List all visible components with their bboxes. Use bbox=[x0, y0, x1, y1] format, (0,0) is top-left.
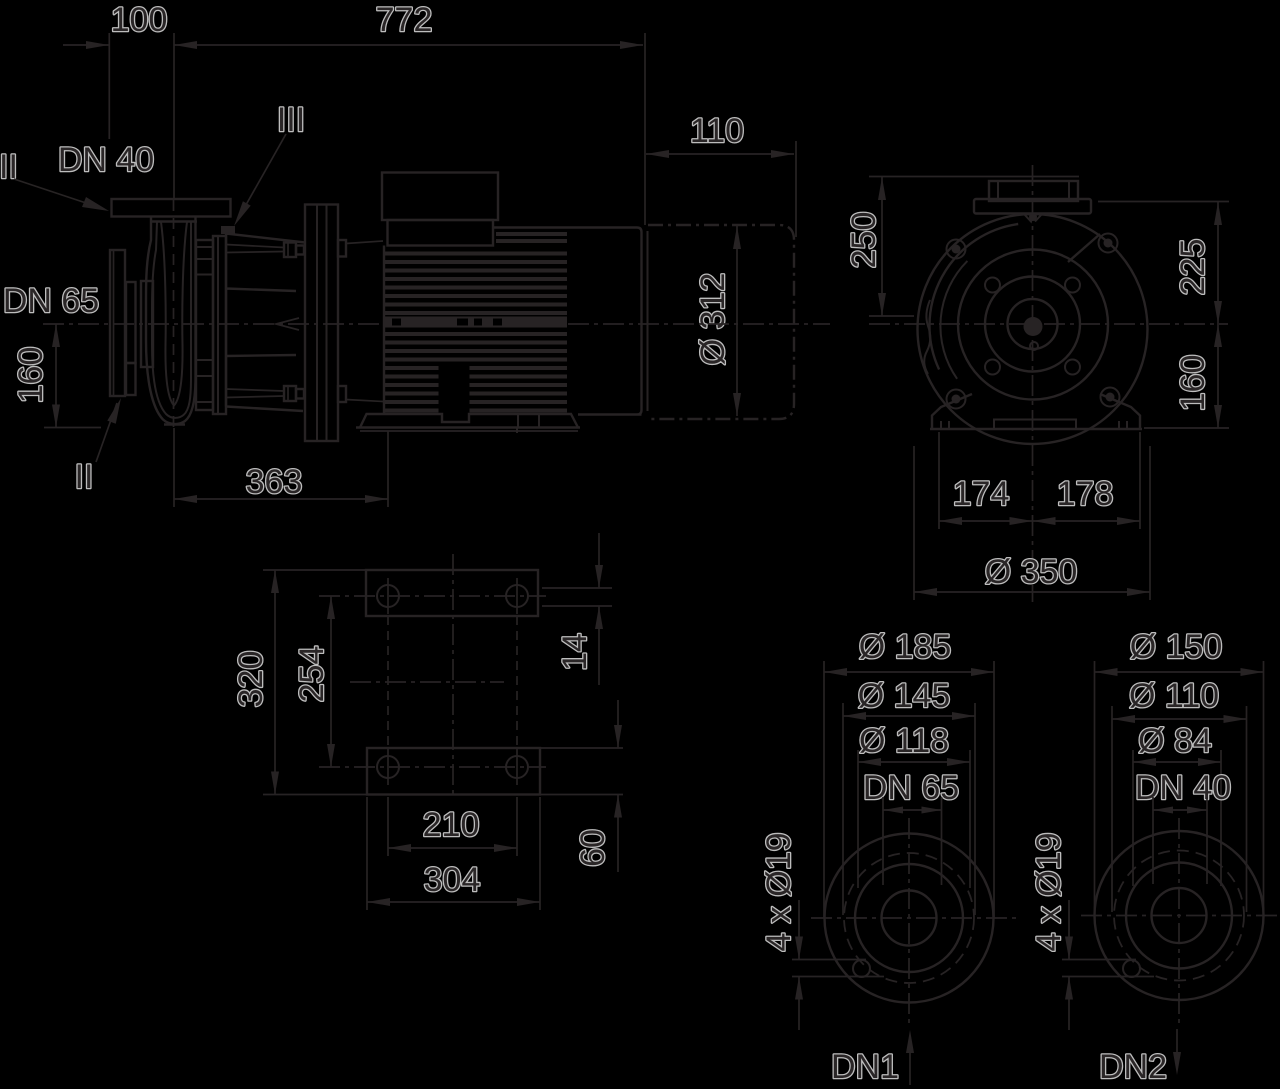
svg-text:Ø 312: Ø 312 bbox=[694, 273, 732, 366]
svg-text:Ø 110: Ø 110 bbox=[1129, 677, 1219, 715]
svg-text:III: III bbox=[277, 101, 305, 139]
svg-text:Ø 185: Ø 185 bbox=[859, 628, 952, 666]
svg-text:363: 363 bbox=[246, 463, 303, 501]
svg-text:210: 210 bbox=[423, 806, 480, 844]
svg-text:60: 60 bbox=[574, 829, 612, 867]
svg-text:II: II bbox=[75, 458, 94, 496]
svg-text:Ø 350: Ø 350 bbox=[985, 553, 1078, 591]
svg-text:225: 225 bbox=[1174, 239, 1212, 296]
svg-text:250: 250 bbox=[845, 212, 883, 269]
svg-text:4 x Ø19: 4 x Ø19 bbox=[1030, 832, 1068, 951]
svg-text:DN 65: DN 65 bbox=[3, 282, 99, 320]
svg-text:174: 174 bbox=[953, 475, 1010, 513]
svg-text:Ø 84: Ø 84 bbox=[1138, 722, 1212, 760]
svg-text:320: 320 bbox=[232, 651, 270, 708]
svg-text:DN1: DN1 bbox=[831, 1048, 899, 1086]
svg-text:DN 65: DN 65 bbox=[863, 769, 959, 807]
svg-text:14: 14 bbox=[556, 633, 594, 671]
svg-text:160: 160 bbox=[1174, 355, 1212, 412]
svg-text:DN2: DN2 bbox=[1099, 1048, 1167, 1086]
svg-text:178: 178 bbox=[1057, 475, 1114, 513]
svg-text:254: 254 bbox=[293, 646, 331, 703]
svg-text:DN 40: DN 40 bbox=[1135, 769, 1231, 807]
svg-text:Ø 150: Ø 150 bbox=[1130, 628, 1223, 666]
svg-text:160: 160 bbox=[12, 347, 50, 404]
svg-text:304: 304 bbox=[424, 861, 481, 899]
svg-text:4 x Ø19: 4 x Ø19 bbox=[760, 832, 798, 951]
svg-text:772: 772 bbox=[376, 1, 433, 39]
svg-text:100: 100 bbox=[111, 1, 168, 39]
svg-text:Ø 118: Ø 118 bbox=[859, 722, 949, 760]
svg-text:DN 40: DN 40 bbox=[58, 141, 154, 179]
svg-text:110: 110 bbox=[690, 112, 744, 150]
svg-text:Ø 145: Ø 145 bbox=[858, 677, 951, 715]
